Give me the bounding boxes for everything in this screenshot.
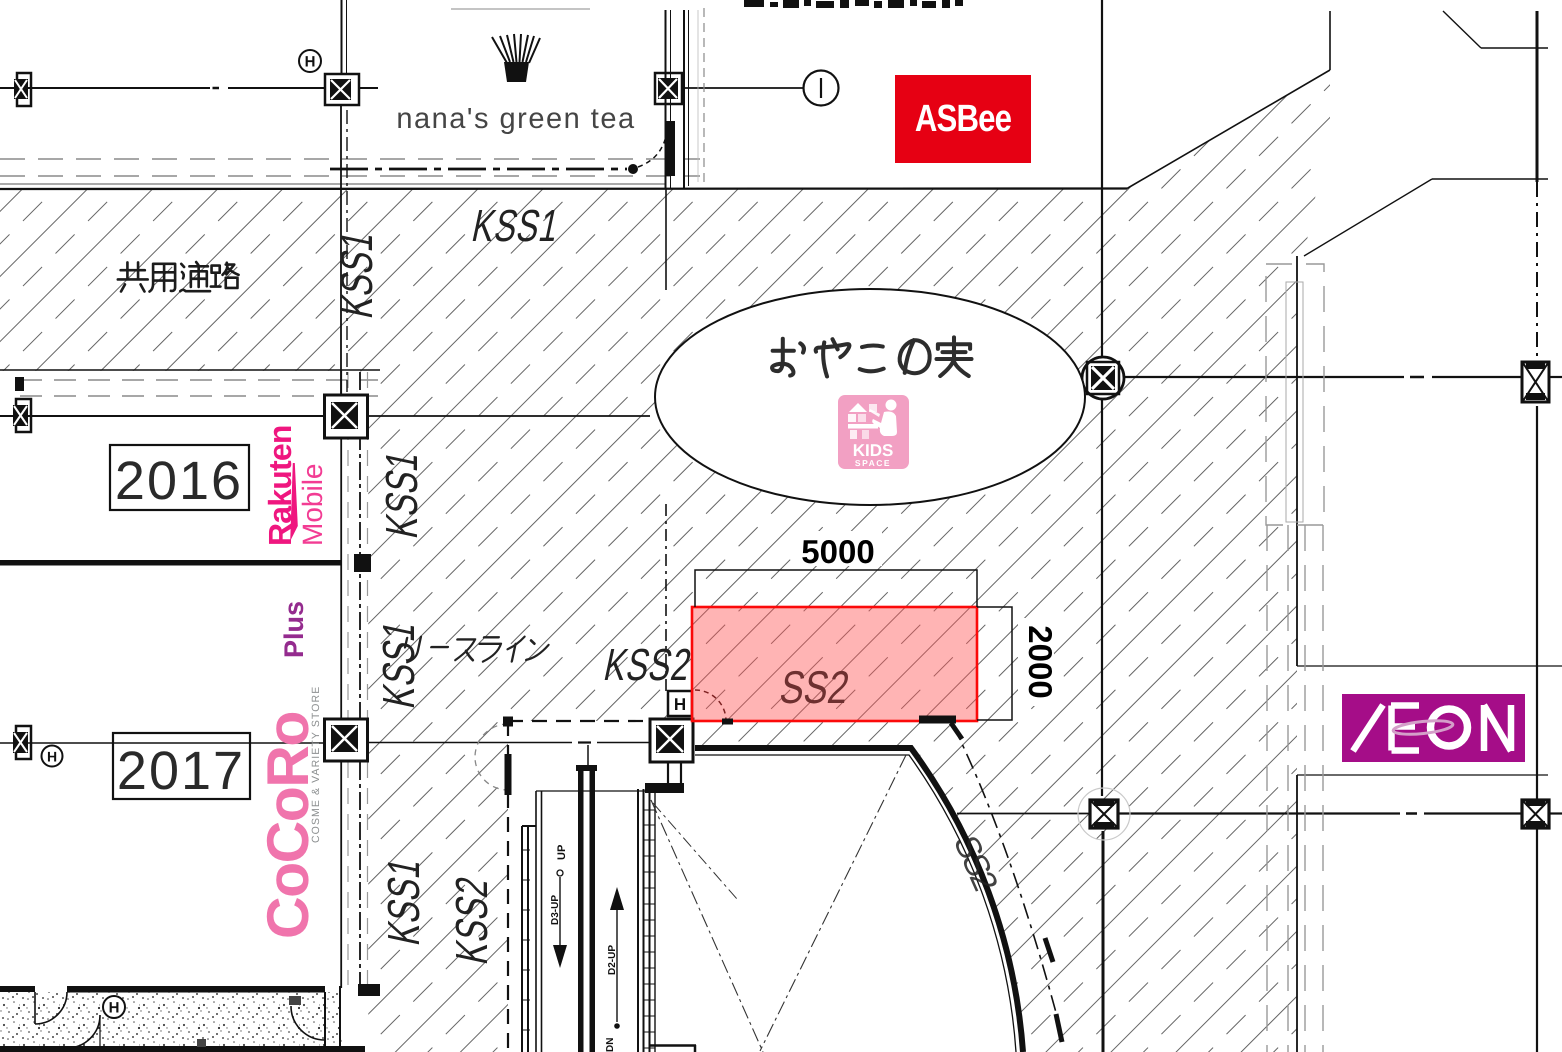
svg-text:Plus: Plus: [279, 601, 309, 658]
svg-text:KSS2: KSS2: [446, 872, 497, 969]
svg-text:2016: 2016: [115, 451, 243, 511]
svg-text:nana's green tea: nana's green tea: [396, 103, 635, 135]
svg-text:Mobile: Mobile: [297, 464, 328, 546]
svg-text:KSS1: KSS1: [331, 226, 382, 323]
svg-text:H: H: [47, 749, 57, 765]
svg-text:2000: 2000: [1022, 625, 1059, 698]
svg-text:KSS1: KSS1: [373, 616, 424, 713]
svg-text:D2-UP: D2-UP: [607, 945, 618, 975]
svg-text:H: H: [305, 54, 316, 71]
svg-text:5000: 5000: [801, 533, 874, 570]
svg-text:DN: DN: [605, 1038, 616, 1052]
svg-text:UP: UP: [556, 845, 568, 860]
svg-text:D3-UP: D3-UP: [550, 895, 561, 925]
svg-text:H: H: [109, 1000, 120, 1017]
svg-text:KSS2: KSS2: [600, 639, 697, 690]
svg-text:KSS1: KSS1: [468, 200, 565, 251]
svg-text:COSME & VARIETY STORE: COSME & VARIETY STORE: [310, 686, 322, 843]
svg-text:ASBee: ASBee: [915, 98, 1011, 140]
svg-text:SPACE: SPACE: [855, 458, 891, 468]
svg-text:2017: 2017: [117, 741, 245, 801]
svg-text:KSS1: KSS1: [378, 853, 429, 950]
svg-text:SS2: SS2: [776, 661, 853, 713]
svg-text:KSS1: KSS1: [376, 446, 427, 543]
svg-text:H: H: [674, 695, 686, 714]
